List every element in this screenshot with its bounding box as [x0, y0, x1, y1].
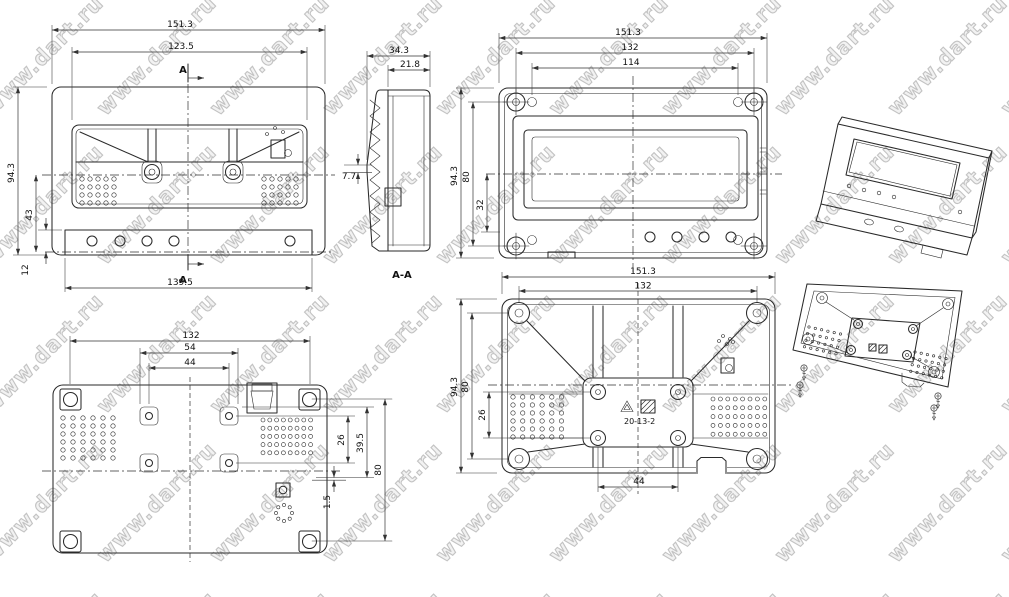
iso-front-view — [816, 117, 992, 258]
back-display-window — [524, 130, 747, 208]
dim-front-overall-width: 151.3 — [167, 20, 193, 30]
enclosure-drawing: A A 151.3 123.5 94.3 43 12 — [0, 0, 1009, 597]
inside-view: 20-13-2 151.3 132 94.3 80 26 44 — [450, 267, 792, 494]
dim-bottom-mount-height: 80 — [374, 464, 384, 476]
dim-bottom-boss-outer: 54 — [184, 343, 196, 353]
section-marker-top: A — [179, 64, 204, 82]
dim-back-overall-height: 94.3 — [450, 166, 460, 186]
dim-bottom-boss-height: 26 — [337, 434, 347, 446]
bottom-connector-cutout — [247, 383, 277, 413]
dim-inside-boss-width: 44 — [633, 477, 645, 487]
front-window — [72, 125, 307, 208]
back-bezel — [513, 116, 758, 220]
dim-inside-boss-height: 26 — [478, 409, 488, 421]
inside-pin-dots — [718, 335, 735, 346]
dim-inside-overall-height: 94.3 — [450, 377, 460, 397]
dim-inside-overall-width: 151.3 — [630, 267, 656, 277]
dim-front-flange-width: 139.5 — [167, 278, 193, 288]
bottom-speaker-holes — [274, 503, 293, 522]
inside-vent-grid-left — [511, 395, 564, 439]
bottom-screw-holes — [140, 407, 238, 472]
front-view: A A 151.3 123.5 94.3 43 12 — [7, 20, 335, 292]
dim-side-body-depth: 21.8 — [400, 60, 420, 70]
part-number: 20-13-2 — [624, 417, 655, 426]
dim-back-mount-width: 132 — [621, 43, 638, 53]
dim-back-center-offset: 32 — [476, 199, 486, 210]
iso-corner-bosses — [803, 293, 954, 378]
bottom-vent-grid-right — [261, 418, 313, 455]
bottom-view: 132 54 44 80 26 39.5 1.5 — [42, 331, 392, 562]
dim-bottom-mount-width: 132 — [182, 331, 199, 341]
iso-marking — [869, 344, 887, 353]
technical-drawing-page: www.dart.ruwww.dart.ruwww.dart.ruwww.dar… — [0, 0, 1009, 597]
dim-side-lip: 7.7 — [342, 172, 356, 182]
dim-inside-mount-height: 80 — [461, 381, 471, 393]
dim-front-flange-height: 12 — [21, 264, 31, 275]
dim-front-window-width: 123.5 — [168, 42, 194, 52]
dim-side-overall-depth: 34.3 — [389, 46, 409, 56]
dim-bottom-boss-offset: 39.5 — [356, 433, 366, 453]
dim-front-overall-height: 94.3 — [7, 163, 17, 183]
section-outline — [367, 90, 430, 251]
dim-back-overall-width: 151.3 — [615, 28, 641, 38]
front-screw-bosses — [142, 161, 243, 183]
section-letter-top: A — [179, 65, 187, 76]
front-vent-grid-left — [80, 177, 116, 205]
dim-inside-mount-width: 132 — [634, 282, 651, 292]
dim-bottom-boss-width: 44 — [184, 358, 196, 368]
dim-bottom-step: 1.5 — [323, 495, 333, 509]
dim-back-mount-height: 80 — [462, 171, 472, 183]
back-view: 151.3 132 114 94.3 80 32 — [450, 28, 782, 272]
section-view: 7.7 34.3 21.8 A-A — [342, 46, 430, 281]
front-vent-grid-right — [262, 177, 298, 205]
dim-back-window-width: 114 — [622, 58, 639, 68]
section-label: A-A — [392, 270, 412, 281]
iso-front-flange — [816, 204, 972, 255]
bottom-switch-hole — [276, 483, 290, 497]
bottom-vent-grid-left — [61, 416, 115, 460]
inside-vent-grid-right — [711, 397, 767, 436]
front-flange — [65, 230, 312, 255]
iso-vent-grid-right — [910, 351, 948, 379]
dim-front-center-to-bottom: 43 — [25, 209, 35, 220]
iso-base-view — [793, 284, 962, 420]
